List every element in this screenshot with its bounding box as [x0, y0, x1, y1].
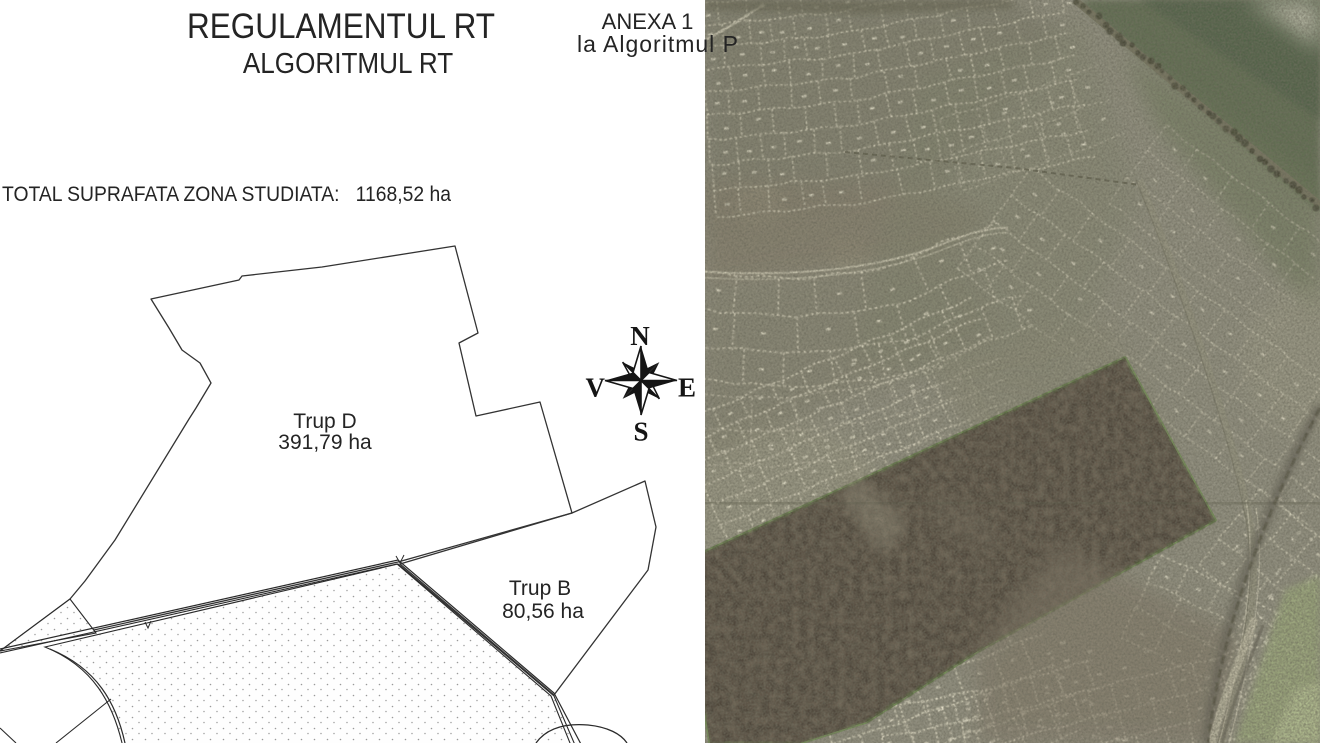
svg-text:V: V	[586, 373, 606, 403]
svg-text:Trup B: Trup B	[509, 577, 571, 600]
svg-text:Trup D: Trup D	[293, 410, 356, 433]
svg-text:391,79 ha: 391,79 ha	[278, 431, 372, 454]
svg-text:N: N	[630, 321, 650, 351]
svg-text:E: E	[678, 373, 696, 403]
svg-text:80,56 ha: 80,56 ha	[502, 600, 584, 623]
svg-text:S: S	[633, 417, 648, 447]
